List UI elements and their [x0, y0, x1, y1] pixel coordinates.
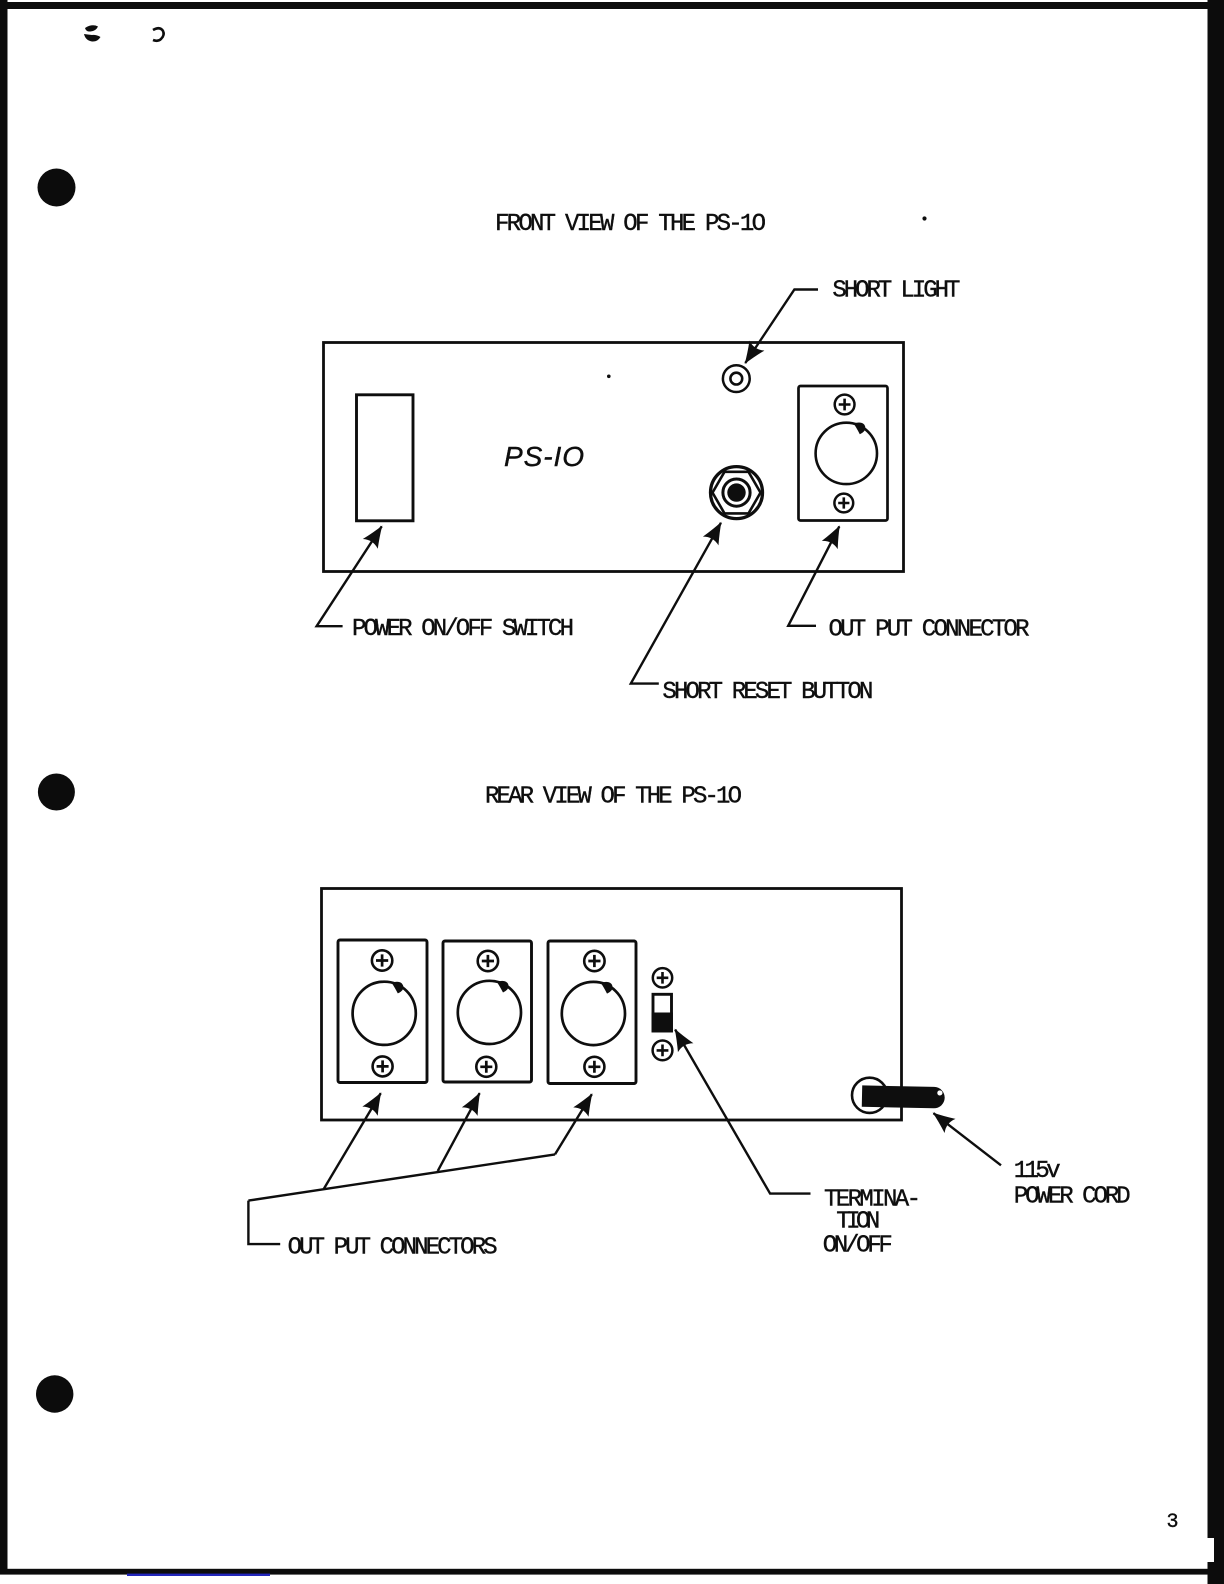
- svg-text:OUT PUT CONNECTORS: OUT PUT CONNECTORS: [288, 1235, 498, 1262]
- svg-text:PS-IO: PS-IO: [504, 441, 586, 472]
- svg-text:ON/OFF: ON/OFF: [823, 1232, 893, 1259]
- svg-text:SHORT RESET BUTTON: SHORT RESET BUTTON: [662, 679, 873, 706]
- svg-text:115v: 115v: [1014, 1158, 1061, 1185]
- svg-text:REAR VIEW OF THE PS-1O: REAR VIEW OF THE PS-1O: [485, 783, 742, 810]
- svg-text:POWER CORD: POWER CORD: [1014, 1183, 1131, 1210]
- svg-text:FRONT VIEW OF THE PS-1O: FRONT VIEW OF THE PS-1O: [495, 211, 766, 238]
- svg-text:TION: TION: [836, 1208, 880, 1235]
- svg-text:OUT PUT CONNECTOR: OUT PUT CONNECTOR: [829, 617, 1030, 644]
- svg-text:POWER ON/OFF SWITCH: POWER ON/OFF SWITCH: [352, 616, 574, 643]
- svg-text:3: 3: [1167, 1511, 1179, 1534]
- svg-text:SHORT LIGHT: SHORT LIGHT: [832, 277, 960, 304]
